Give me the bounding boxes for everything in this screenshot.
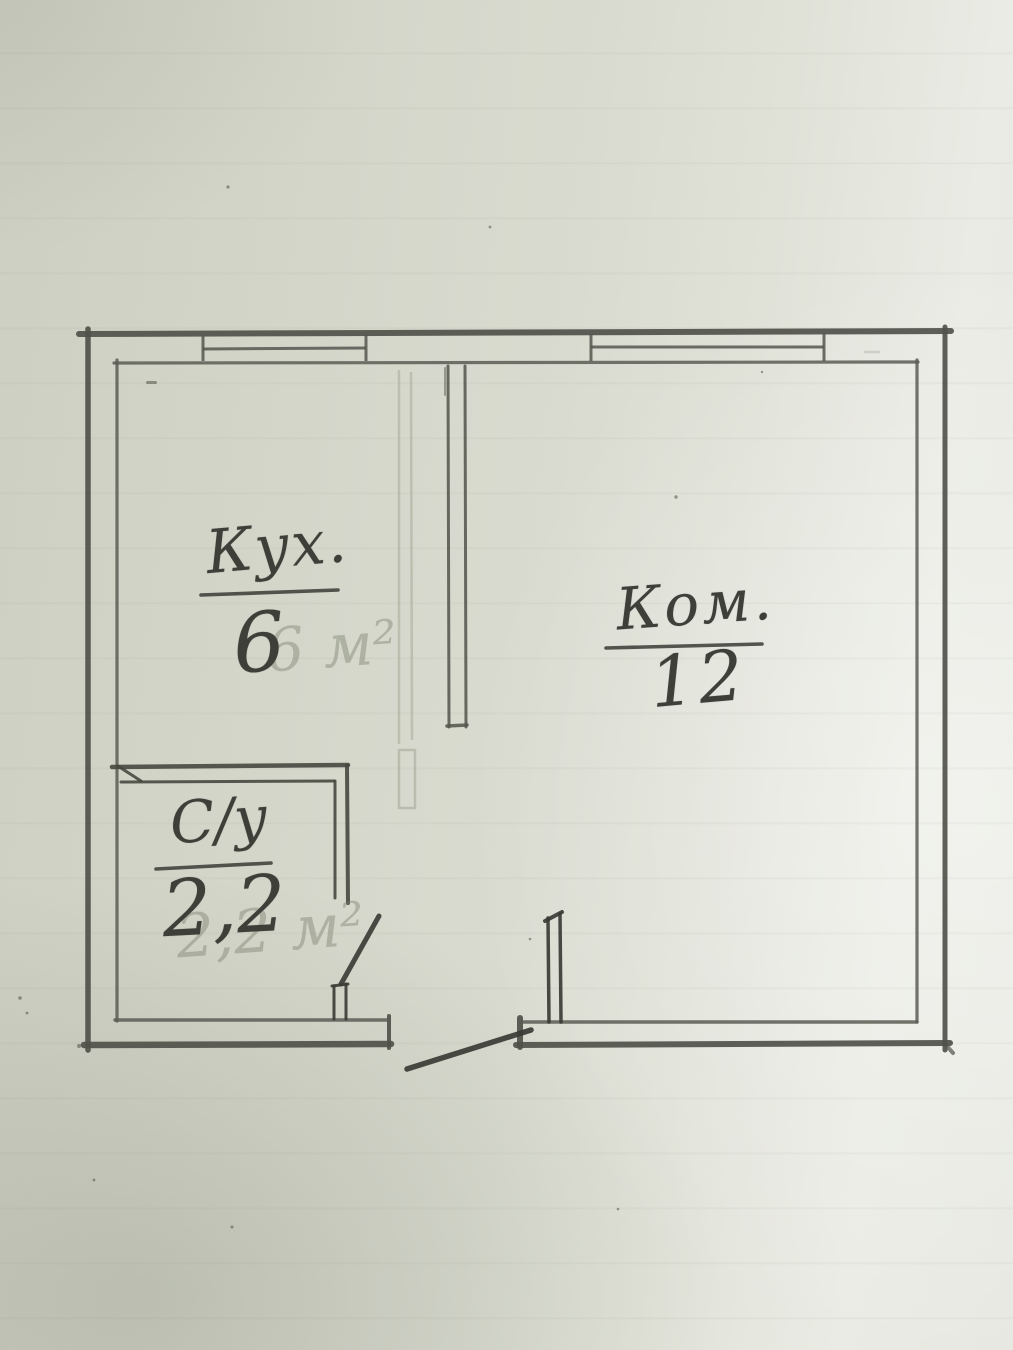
room-label: Ком. xyxy=(614,565,777,644)
room-area-value: 12 xyxy=(647,634,751,724)
entry-door-jamb xyxy=(548,918,549,1022)
scanned-paper-sheet: 6 м² Кух. 6 Ком. 12 2,2 м² С/у 2,2 xyxy=(0,0,1013,1350)
kitchen-label: Кух. xyxy=(203,506,351,588)
entry-door-leaf xyxy=(407,1030,531,1069)
kitchen-area-value: 6 xyxy=(230,594,289,692)
bathroom-label: С/у xyxy=(168,783,270,858)
window-right xyxy=(591,334,824,361)
bathroom-area-value: 2,2 xyxy=(160,859,289,955)
floor-plan-drawing xyxy=(0,0,1013,1350)
partition-wall xyxy=(445,366,467,727)
window-left xyxy=(203,335,366,361)
